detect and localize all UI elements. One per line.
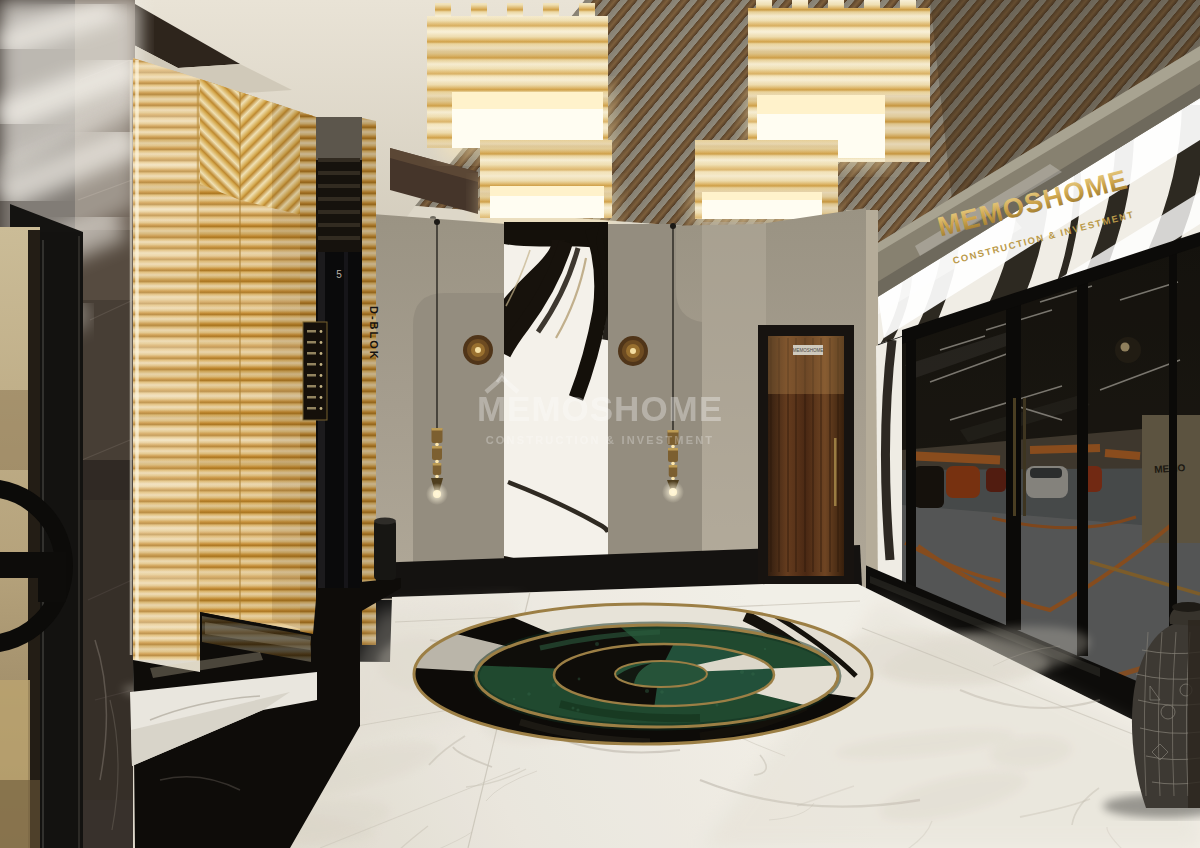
svg-text:CONSTRUCTION & INVESTMENT: CONSTRUCTION & INVESTMENT: [486, 434, 715, 446]
svg-text:5: 5: [336, 269, 342, 280]
svg-text:D-BLOK: D-BLOK: [368, 306, 380, 361]
svg-text:MEMOSHOME: MEMOSHOME: [793, 348, 824, 353]
svg-text:MEMOSHOME: MEMOSHOME: [477, 389, 723, 428]
